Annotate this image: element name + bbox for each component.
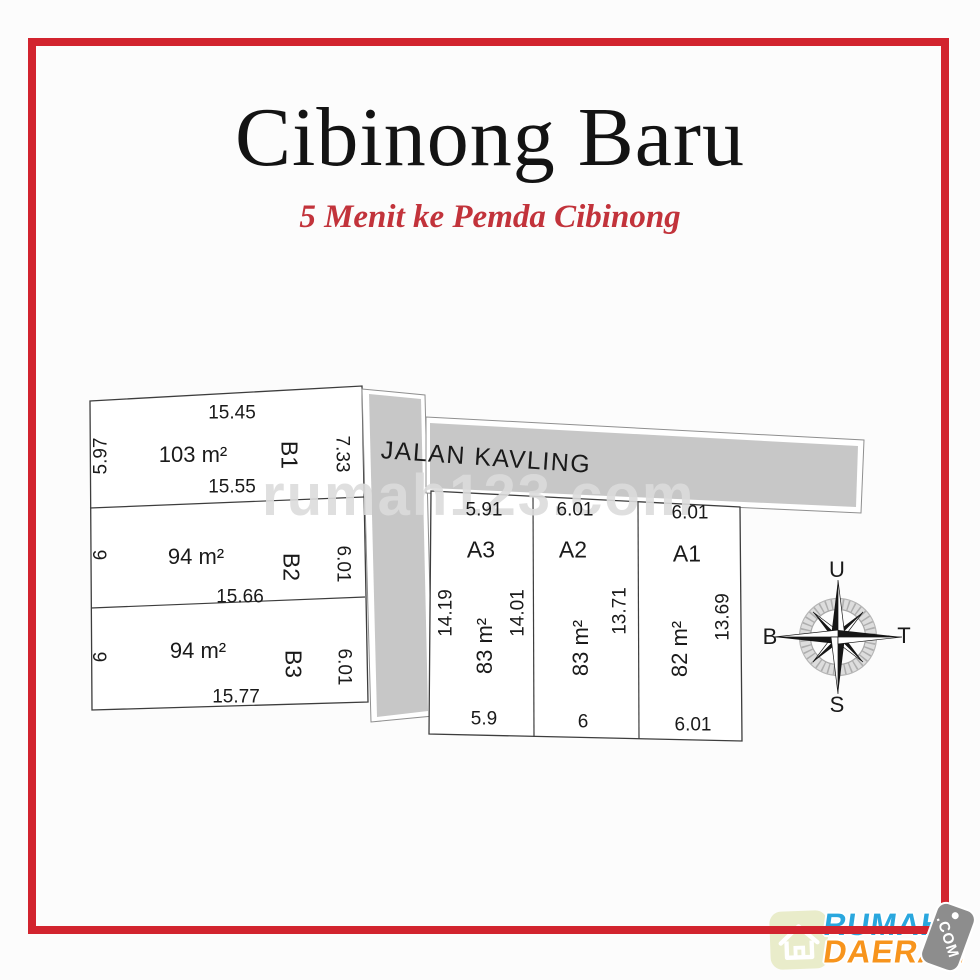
tag-hole [951, 911, 960, 920]
red-border-frame [28, 38, 949, 934]
tag-label: .COM [933, 914, 963, 960]
site-plan-poster: Cibinong Baru 5 Menit ke Pemda Cibinong [0, 0, 980, 980]
